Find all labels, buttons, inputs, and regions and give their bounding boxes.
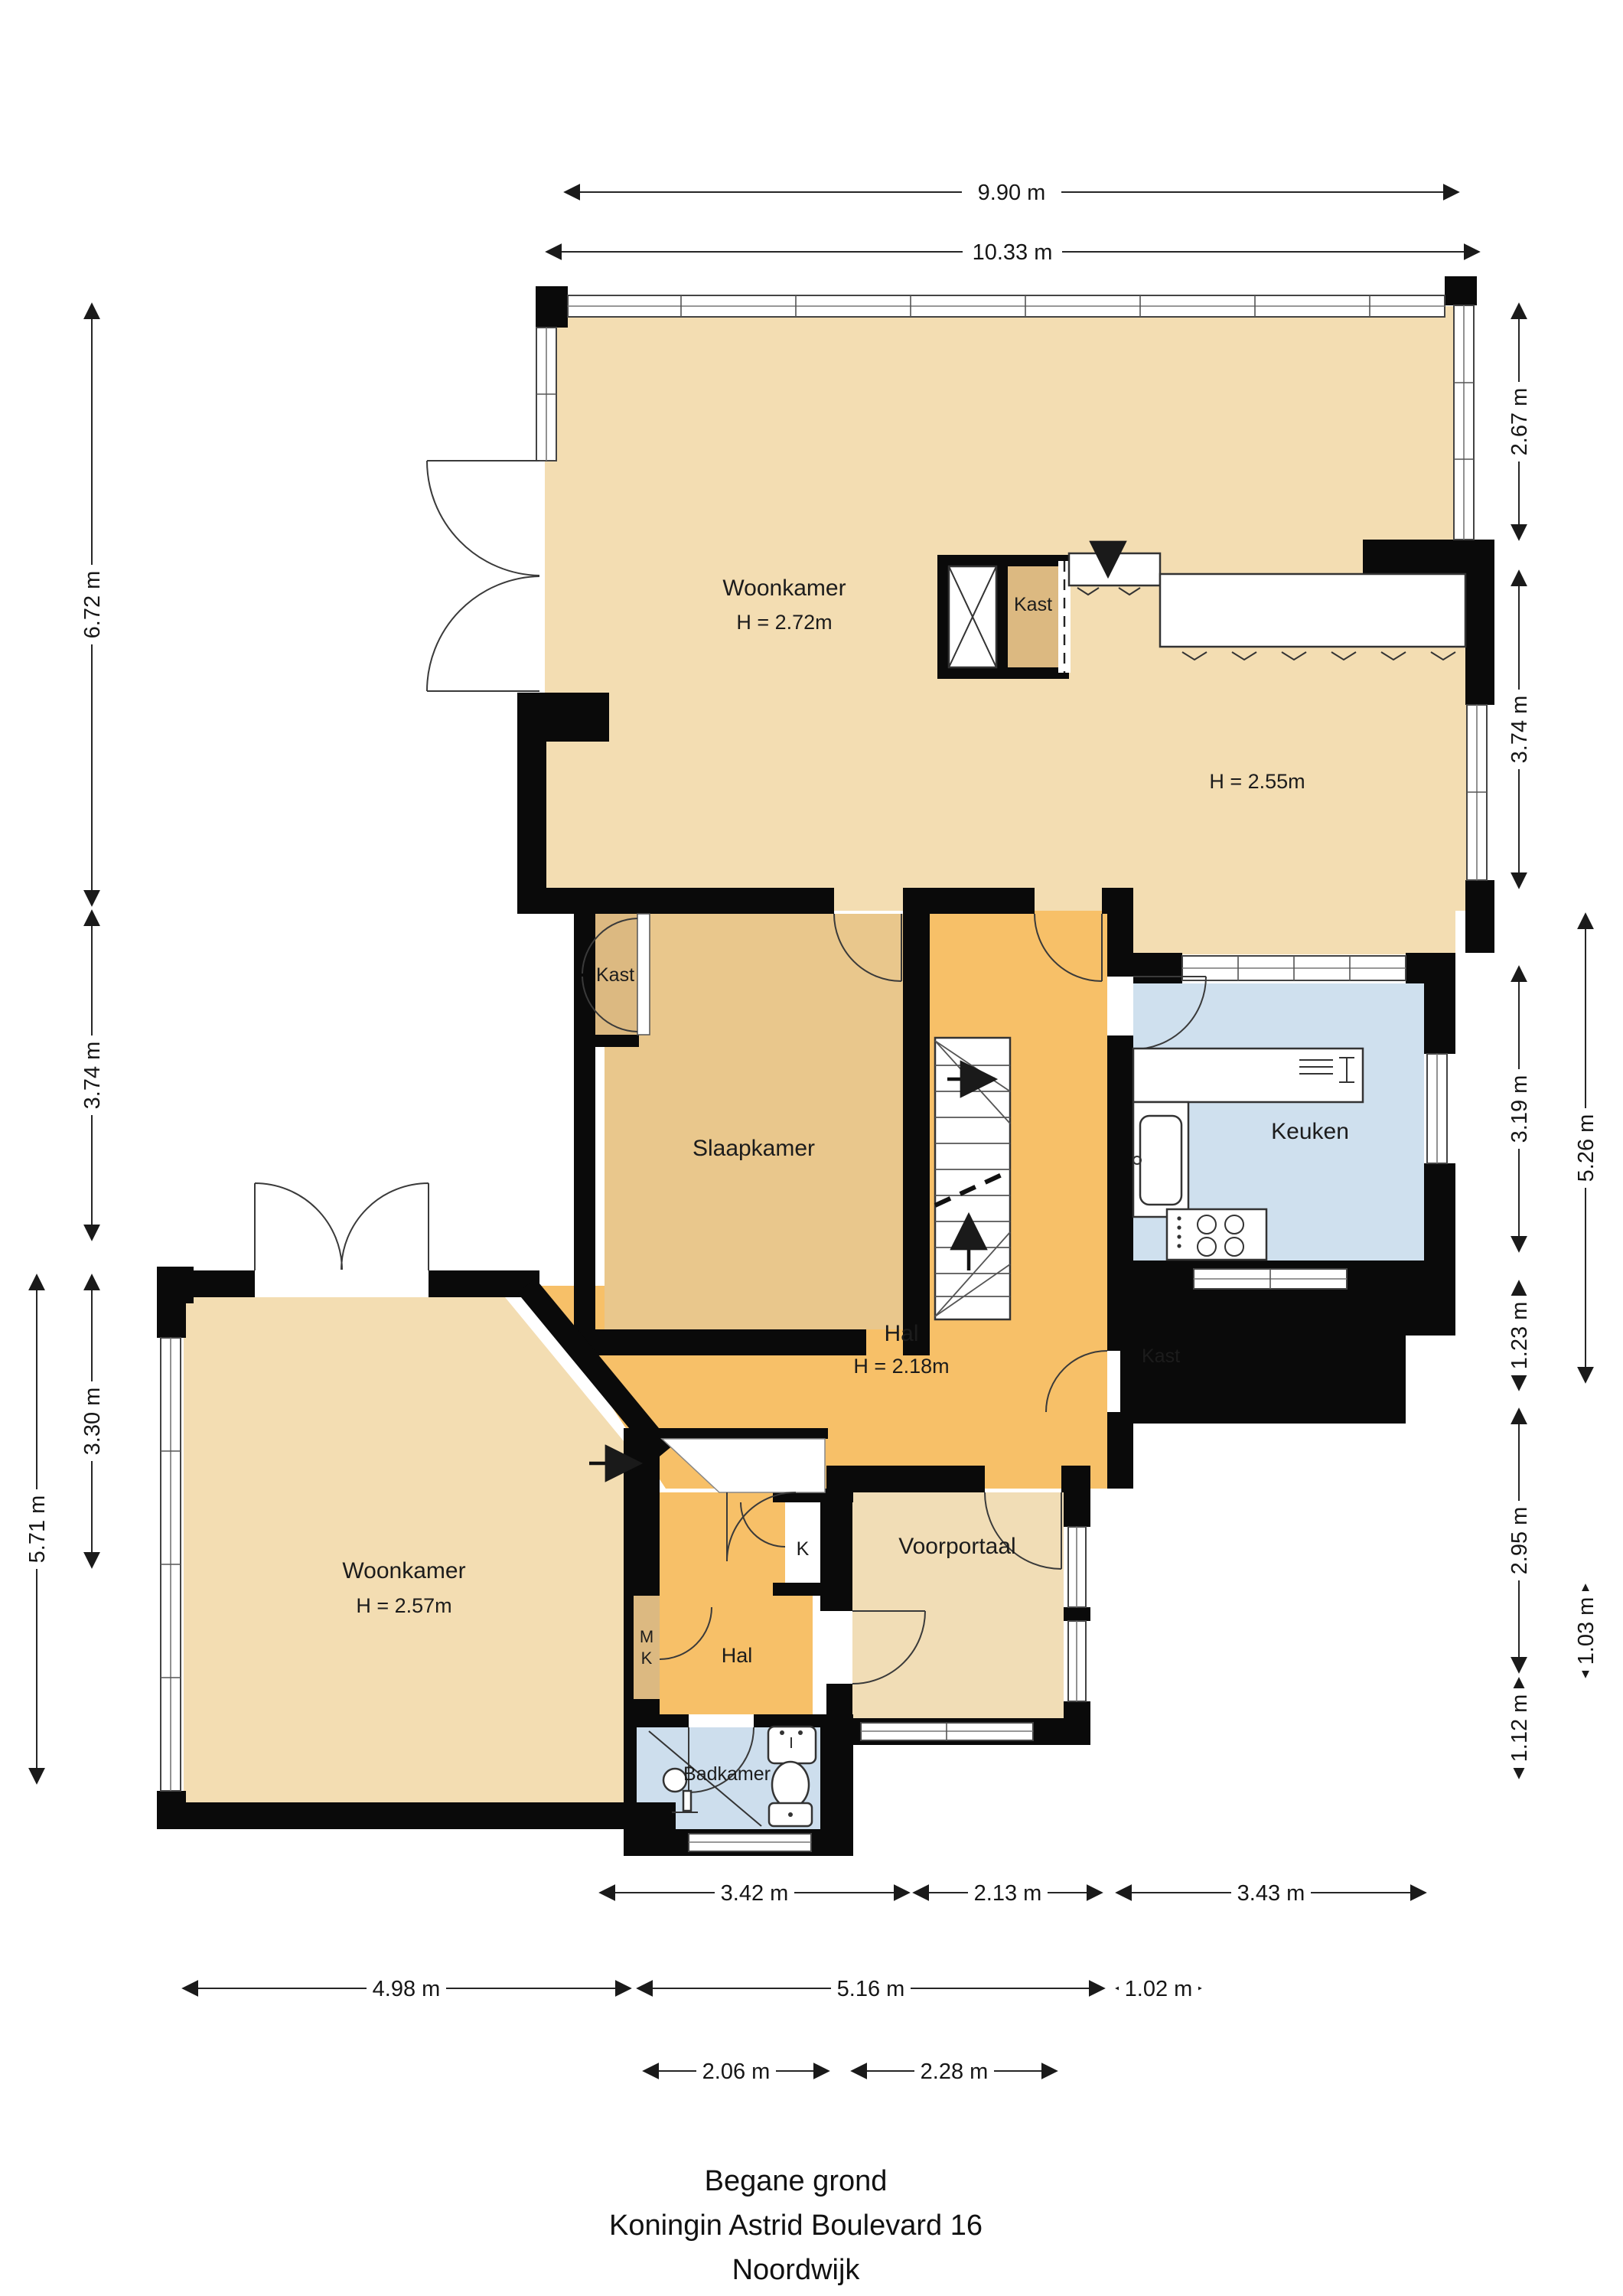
title-city: Noordwijk [732,2254,861,2286]
window-woonkamer-beneden-left [161,1338,181,1791]
label-woonkamer-top: Woonkamer [722,576,846,601]
svg-text:2.06 m: 2.06 m [702,2060,771,2084]
kitchen-counter-top [1133,1049,1363,1102]
dimension-right-outer-526: 5.26 m [1571,914,1600,1382]
dimension-bottom-343: 3.43 m [1116,1878,1426,1907]
label-dining-height: H = 2.55m [1209,770,1305,793]
kast-top-floor [1008,566,1058,667]
window-keuken-right [1427,1054,1447,1163]
plan-title: Begane grond Koningin Astrid Boulevard 1… [609,2165,983,2286]
svg-text:5.71 m: 5.71 m [25,1495,50,1564]
dimension-bottom-516: 5.16 m [637,1974,1104,2003]
label-slaapkamer: Slaapkamer [693,1136,815,1161]
svg-text:1.12 m: 1.12 m [1507,1694,1532,1763]
dimension-bottom-342: 3.42 m [600,1878,909,1907]
toilet-icon [769,1762,812,1826]
title-floor: Begane grond [705,2165,888,2197]
label-keuken: Keuken [1271,1119,1349,1144]
label-kast-slaapkamer: Kast [596,964,634,986]
window-voorportaal-right-2 [1068,1621,1086,1701]
dimension-right-374: 3.74 m [1504,571,1533,888]
dimension-bottom-102: 1.02 m [1116,1974,1201,2003]
svg-text:10.33 m: 10.33 m [973,240,1053,265]
window-right-upper [1454,305,1474,540]
chimney-kast-block [949,561,1071,673]
dimension-right-112: 1.12 m [1504,1678,1533,1778]
french-doors-left [427,461,539,691]
dimension-right-outer-103: 1.03 m [1571,1585,1600,1677]
svg-text:4.98 m: 4.98 m [373,1977,441,2001]
svg-text:2.67 m: 2.67 m [1507,388,1532,456]
dimension-bottom-228: 2.28 m [852,2056,1057,2086]
svg-text:2.95 m: 2.95 m [1507,1507,1532,1575]
svg-text:2.13 m: 2.13 m [974,1881,1042,1906]
dimension-left-571: 5.71 m [22,1275,51,1783]
label-kast-hal: Kast [1142,1345,1180,1367]
dimension-left-330: 3.30 m [77,1275,106,1567]
meterkast-floor [634,1596,660,1699]
svg-text:1.02 m: 1.02 m [1125,1977,1193,2001]
dimension-bottom-206: 2.06 m [644,2056,829,2086]
svg-text:6.72 m: 6.72 m [80,571,105,639]
floorplan-page: Woonkamer H = 2.72m Kast H = 2.55m Slaap… [0,0,1623,2296]
french-doors-woonkamer-beneden [255,1183,429,1270]
svg-text:5.26 m: 5.26 m [1574,1114,1599,1182]
window-badkamer-bottom [689,1834,811,1851]
floorplan-canvas: Woonkamer H = 2.72m Kast H = 2.55m Slaap… [0,0,1623,2296]
dimension-right-295: 2.95 m [1504,1409,1533,1672]
label-badkamer: Badkamer [683,1763,771,1785]
bar-counter [1160,574,1465,647]
label-hal-klein: Hal [722,1644,753,1667]
window-keuken-top [1182,956,1406,980]
label-k-closet: K [797,1538,810,1560]
svg-text:3.19 m: 3.19 m [1507,1075,1532,1143]
window-voorportaal-bottom [861,1723,1033,1740]
svg-text:2.28 m: 2.28 m [921,2060,989,2084]
dimension-bottom-213: 2.13 m [914,1878,1102,1907]
svg-text:1.23 m: 1.23 m [1507,1302,1532,1370]
window-left-top [536,328,556,461]
window-top-band [568,295,1445,317]
svg-text:1.03 m: 1.03 m [1574,1597,1599,1665]
label-woonkamer-beneden: Woonkamer [342,1558,465,1583]
svg-text:3.43 m: 3.43 m [1237,1881,1305,1906]
svg-text:3.42 m: 3.42 m [721,1881,789,1906]
label-meterkast-k: K [641,1649,653,1668]
svg-text:5.16 m: 5.16 m [837,1977,905,2001]
dining-floor [1133,911,1455,954]
sink-icon [1140,1116,1181,1205]
label-woonkamer-top-height: H = 2.72m [736,611,832,634]
label-voorportaal: Voorportaal [898,1534,1015,1559]
label-kast-top: Kast [1014,594,1052,615]
svg-text:3.30 m: 3.30 m [80,1388,105,1456]
window-right-dining [1467,705,1487,880]
label-hal: Hal [884,1321,918,1346]
svg-text:3.74 m: 3.74 m [1507,696,1532,764]
svg-text:3.74 m: 3.74 m [80,1042,105,1110]
hal-klein-floor-a [660,1492,785,1596]
staircase [935,1038,1010,1319]
dimension-left-672: 6.72 m [77,304,106,905]
stove-counter [1167,1209,1266,1260]
dimension-bottom-498: 4.98 m [183,1974,631,2003]
bathroom-sink-icon [768,1727,816,1763]
dimension-right-319: 3.19 m [1504,967,1533,1251]
label-woonkamer-beneden-height: H = 2.57m [356,1594,451,1617]
label-meterkast-m: M [640,1627,653,1646]
dimension-top-990: 9.90 m [565,178,1458,207]
window-keuken-bottom [1194,1269,1347,1289]
window-voorportaal-right-1 [1068,1527,1086,1607]
dimension-right-267: 2.67 m [1504,304,1533,540]
dimension-top-1033: 10.33 m [546,237,1479,266]
label-hal-height: H = 2.18m [853,1355,949,1378]
step [1069,553,1160,585]
dimension-right-123: 1.23 m [1504,1281,1533,1390]
voorportaal-floor [852,1492,1064,1718]
dimension-left-374: 3.74 m [77,911,106,1240]
title-address: Koningin Astrid Boulevard 16 [609,2210,983,2242]
svg-text:9.90 m: 9.90 m [978,181,1046,205]
